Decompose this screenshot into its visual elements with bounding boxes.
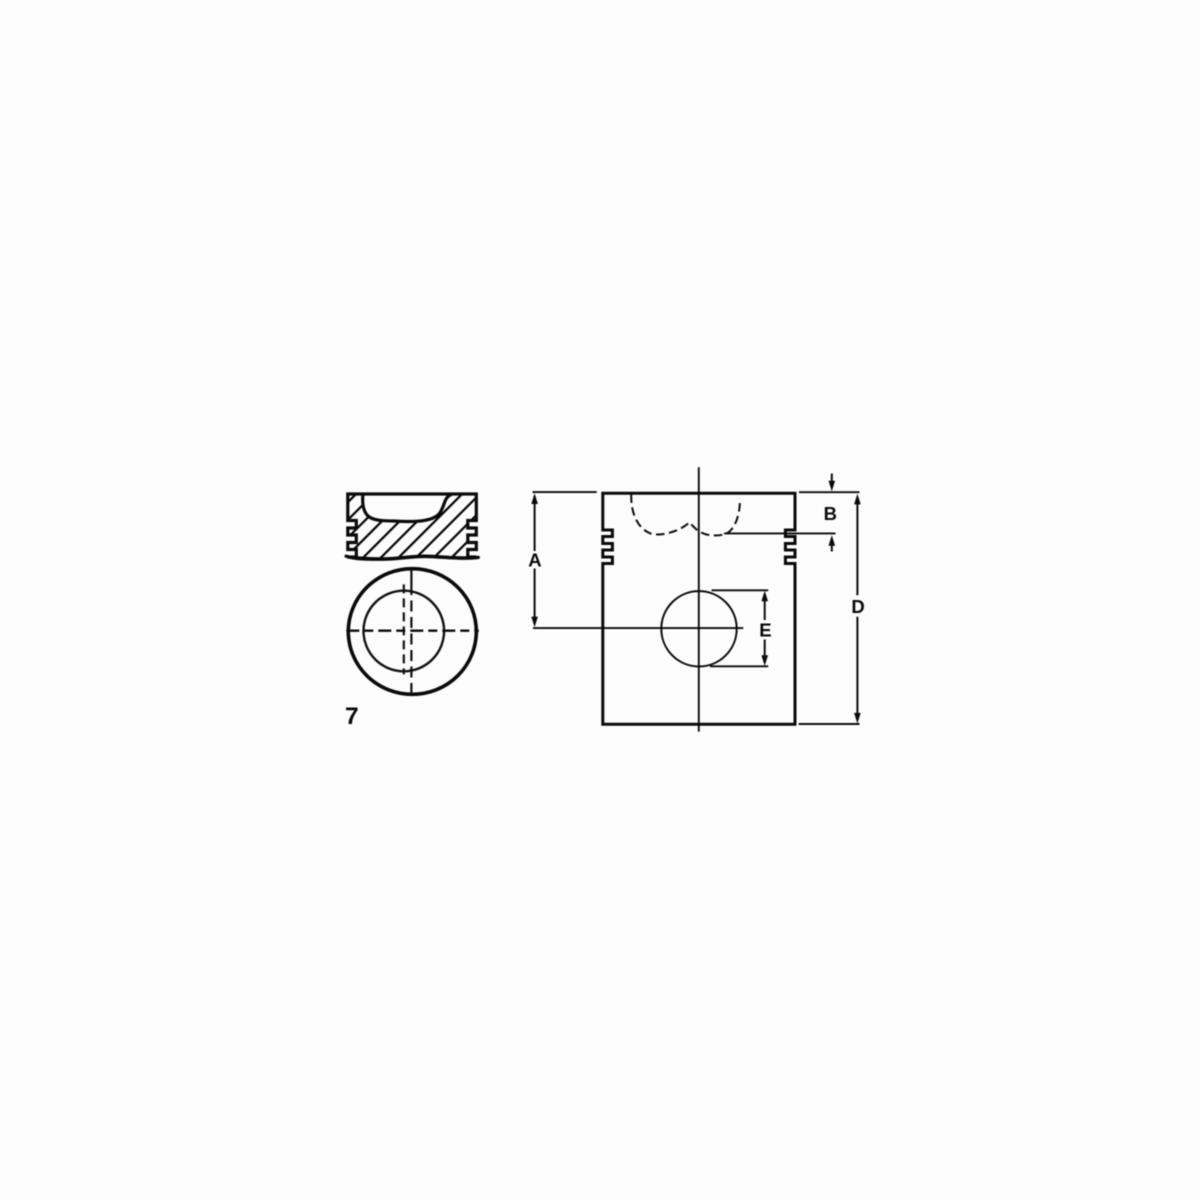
svg-text:D: D [851, 596, 864, 617]
svg-text:A: A [528, 549, 541, 570]
svg-text:B: B [824, 503, 837, 524]
svg-text:7: 7 [345, 703, 359, 730]
svg-text:E: E [759, 619, 771, 640]
